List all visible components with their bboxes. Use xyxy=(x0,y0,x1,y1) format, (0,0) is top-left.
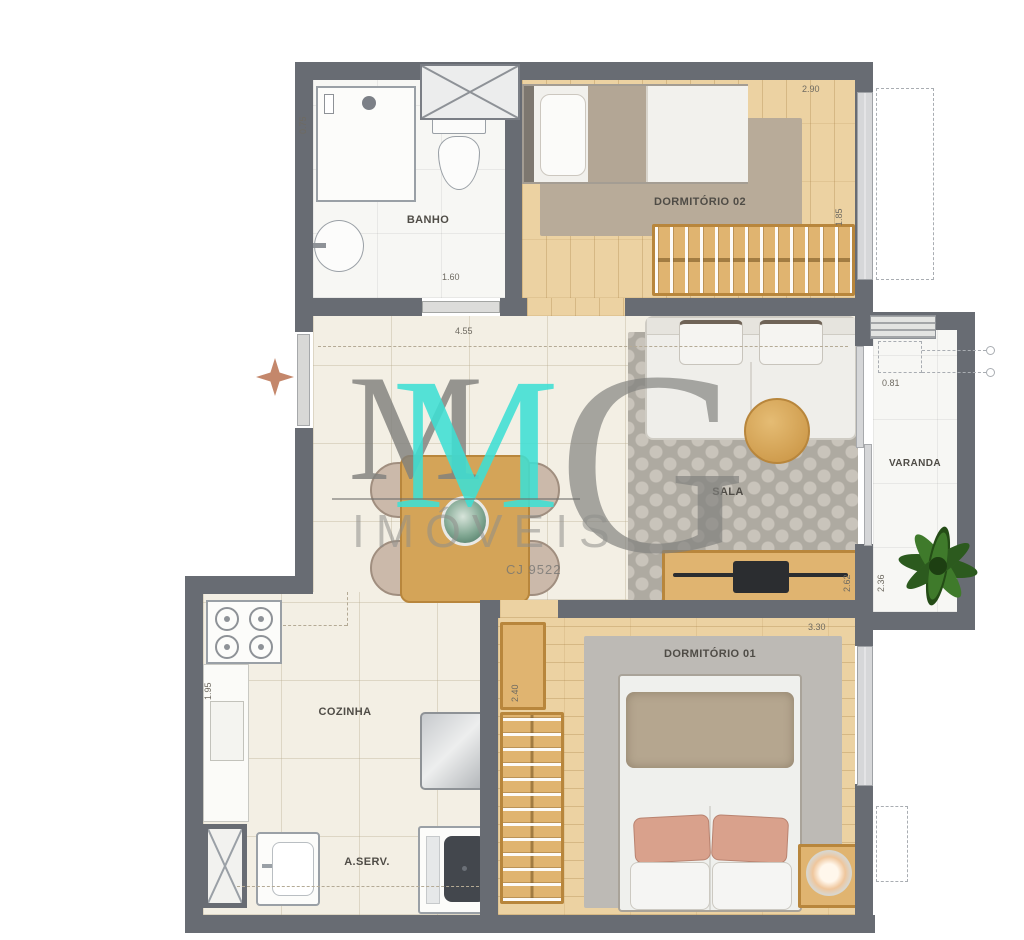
dim-dorm2-width: 2.90 xyxy=(802,84,820,94)
bed-blanket xyxy=(588,86,646,182)
room-label-dormitorio2: DORMITÓRIO 02 xyxy=(590,196,810,208)
room-label-banho: BANHO xyxy=(368,214,488,226)
kitchen-boundary xyxy=(347,592,348,626)
wall xyxy=(855,784,873,933)
room-label-varanda: VARANDA xyxy=(870,458,960,469)
entry-door xyxy=(297,334,310,426)
wall xyxy=(558,600,873,618)
single-bed xyxy=(522,84,748,184)
sliding-door xyxy=(422,301,500,313)
room-label-cozinha: COZINHA xyxy=(285,706,405,718)
tv-icon xyxy=(733,561,789,593)
dim-banho-width: 1.60 xyxy=(442,272,460,282)
bed-pillow xyxy=(712,862,792,910)
sofa-cushion xyxy=(759,320,823,365)
wall xyxy=(295,428,313,594)
room-label-sala: SALA xyxy=(678,486,778,498)
double-bed xyxy=(618,674,802,912)
bed-pillow-accent xyxy=(711,814,789,864)
dim-varanda-depth: 2.36 xyxy=(876,574,886,592)
dashed-line xyxy=(922,372,986,373)
window xyxy=(857,646,873,786)
shaft-x-icon xyxy=(422,66,518,118)
wall xyxy=(295,62,873,80)
cabinet xyxy=(500,622,546,710)
bed-headboard xyxy=(524,86,534,182)
toilet-tank xyxy=(432,118,486,134)
window xyxy=(857,92,873,280)
dim-sala-depth: 2.62 xyxy=(842,574,852,592)
shower-valve-icon xyxy=(324,94,334,114)
room-label-aserv: A.SERV. xyxy=(312,856,422,868)
washer-panel xyxy=(426,836,440,904)
laundry-tank-icon xyxy=(256,832,320,906)
bed-duvet xyxy=(646,86,748,182)
bed-pillow xyxy=(630,862,710,910)
plant-icon xyxy=(886,506,990,620)
kitchen-sink xyxy=(210,701,244,761)
dashed-ac-unit xyxy=(876,806,908,882)
entry-arrow-icon xyxy=(256,358,294,396)
wall xyxy=(855,630,873,646)
floor-plan: BANHO DORMITÓRIO 02 SALA VARANDA COZINHA… xyxy=(0,0,1024,940)
bed-pillow-accent xyxy=(633,814,711,864)
sofa-cushion xyxy=(679,320,743,365)
wardrobe xyxy=(500,712,564,904)
dimension-line xyxy=(318,346,848,347)
tank-basin xyxy=(272,842,314,896)
wall xyxy=(295,298,422,316)
balcony-counter xyxy=(870,315,936,339)
dim-dorm1-depth: 2.40 xyxy=(510,684,520,702)
dashed-fixture xyxy=(878,341,922,373)
dashed-line xyxy=(922,350,986,351)
shaft-x-icon xyxy=(208,829,242,903)
shower-icon xyxy=(362,96,376,110)
wall xyxy=(295,62,313,332)
dim-dorm2-depth: 1.85 xyxy=(834,208,844,226)
tank-tap xyxy=(262,864,272,868)
duct-shaft xyxy=(420,64,520,120)
wall xyxy=(480,600,498,933)
laundry-boundary xyxy=(237,886,479,887)
lamp-icon xyxy=(806,850,852,896)
fruit-bowl-icon xyxy=(441,496,489,546)
bed-blanket xyxy=(626,692,794,768)
door-opening xyxy=(527,298,625,316)
service-shaft xyxy=(203,824,247,908)
kitchen-boundary xyxy=(283,625,347,626)
stove-icon xyxy=(206,600,282,664)
room-label-dormitorio1: DORMITÓRIO 01 xyxy=(600,648,820,660)
wardrobe xyxy=(652,224,855,296)
dim-dorm1-width: 3.30 xyxy=(808,622,826,632)
dim-varanda-width: 0.81 xyxy=(882,378,900,388)
dashed-ac-unit xyxy=(876,88,934,280)
wall xyxy=(500,298,527,316)
dim-cozinha-depth: 1.95 xyxy=(203,682,213,700)
side-table xyxy=(744,398,810,464)
tv-console xyxy=(662,550,859,604)
dim-living-width: 4.55 xyxy=(455,326,473,336)
dashed-line-end xyxy=(986,346,995,355)
sliding-glass-door xyxy=(856,346,864,448)
dim-banho-depth: 0.75 xyxy=(298,116,308,134)
bed-pillow xyxy=(540,94,586,176)
wall xyxy=(625,298,873,316)
wall xyxy=(185,576,203,933)
wall xyxy=(185,576,313,594)
dashed-line-end xyxy=(986,368,995,377)
door-opening xyxy=(500,600,558,618)
wall xyxy=(185,915,875,933)
